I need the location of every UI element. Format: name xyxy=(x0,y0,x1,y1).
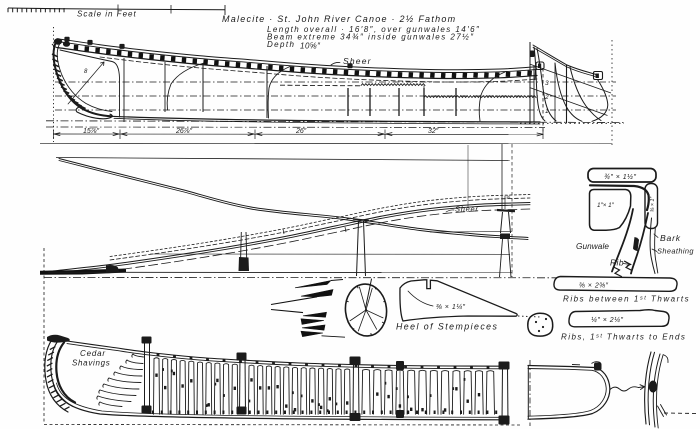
svg-text:⅜ × 1¼″: ⅜ × 1¼″ xyxy=(436,304,466,311)
svg-text:Gunwale: Gunwale xyxy=(576,242,609,251)
svg-text:3: 3 xyxy=(545,80,549,87)
svg-text:Scale in Feet: Scale in Feet xyxy=(77,10,137,19)
svg-text:Depth: Depth xyxy=(267,40,295,49)
svg-text:1″× 1″: 1″× 1″ xyxy=(597,202,615,209)
svg-text:Heel of Stempieces: Heel of Stempieces xyxy=(396,322,498,332)
svg-text:Sheer: Sheer xyxy=(343,56,372,66)
svg-text:26⅞″: 26⅞″ xyxy=(175,128,193,135)
svg-text:Ribs, 1ˢᵗ Thwarts to Ends: Ribs, 1ˢᵗ Thwarts to Ends xyxy=(561,333,686,342)
svg-text:32″: 32″ xyxy=(428,128,439,135)
svg-text:¼″ × 2¼″: ¼″ × 2¼″ xyxy=(591,317,624,324)
svg-text:10⅝″: 10⅝″ xyxy=(300,42,321,51)
svg-text:Rib: Rib xyxy=(610,258,624,268)
svg-text:26″: 26″ xyxy=(295,128,307,135)
svg-text:Bark: Bark xyxy=(660,233,681,243)
svg-text:8: 8 xyxy=(84,69,88,75)
svg-text:⅜ × 2⅜″: ⅜ × 2⅜″ xyxy=(579,283,609,290)
svg-text:Ribs between 1ˢᵗ Thwarts: Ribs between 1ˢᵗ Thwarts xyxy=(563,295,690,304)
svg-text:Cedar: Cedar xyxy=(80,349,106,358)
svg-text:⅜ × 1″: ⅜ × 1″ xyxy=(650,196,656,212)
svg-text:Sheer: Sheer xyxy=(455,205,479,214)
svg-text:Beam extreme 34¾″ inside gun: Beam extreme 34¾″ inside gunwales 27½″ xyxy=(267,33,475,42)
svg-text:⅜: ⅜ xyxy=(506,195,511,201)
svg-text:¾″ × 1½″: ¾″ × 1½″ xyxy=(604,173,637,181)
svg-text:Shavings: Shavings xyxy=(72,359,111,368)
svg-text:Malecite · St. John River Cano: Malecite · St. John River Canoe · 2½ Fat… xyxy=(222,14,456,24)
svg-text:15⅞″: 15⅞″ xyxy=(83,128,100,135)
svg-text:Sheathing: Sheathing xyxy=(657,247,694,256)
